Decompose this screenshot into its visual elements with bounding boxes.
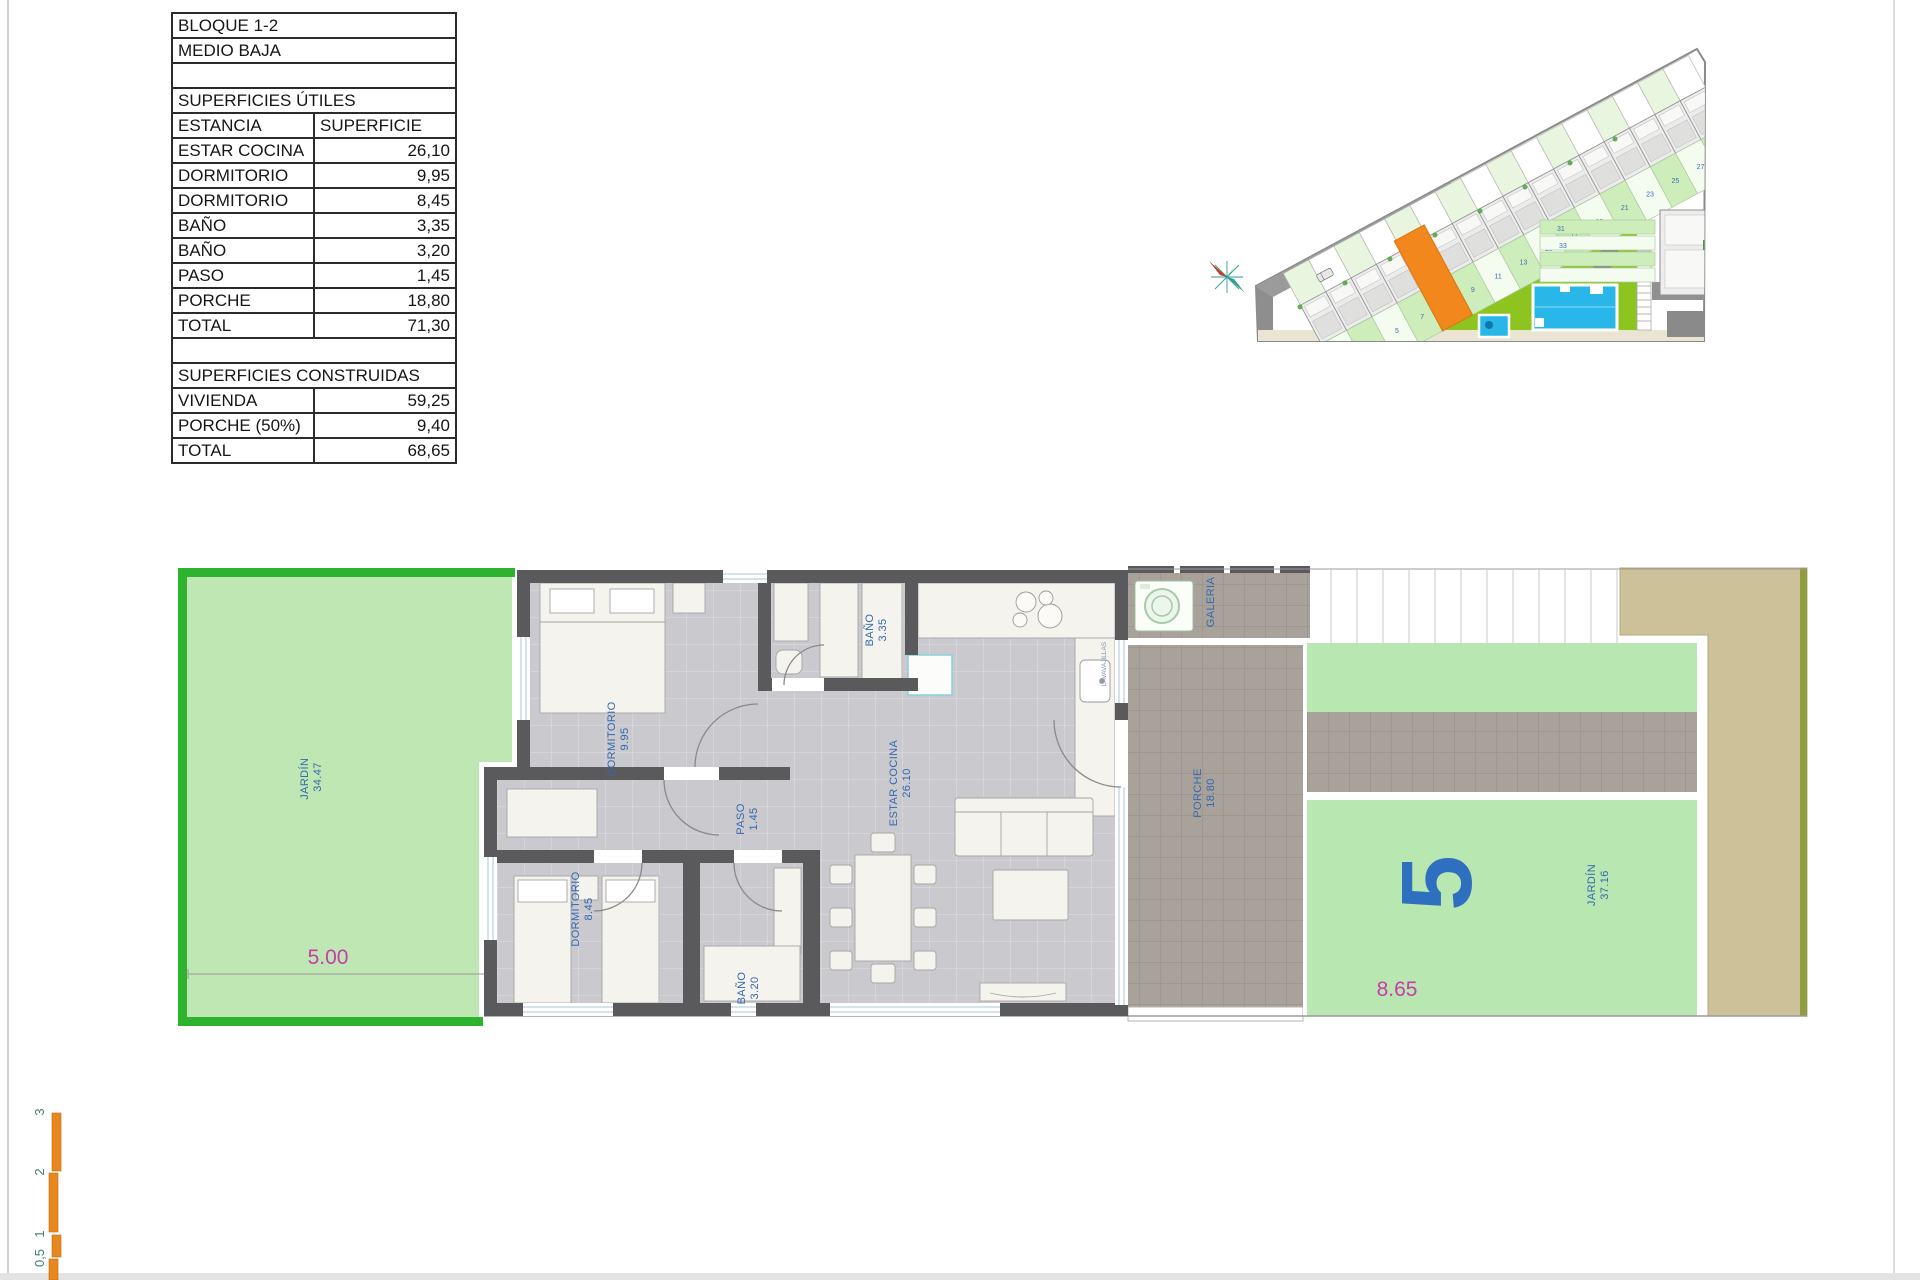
- table-row: TOTAL68,65: [172, 438, 456, 463]
- table-row: DORMITORIO9,95: [172, 163, 456, 188]
- porch-floor: [1128, 645, 1303, 1007]
- room-label-paso: PASO1.45: [735, 803, 760, 834]
- kids-pool: [1479, 315, 1509, 337]
- side-pool: [1732, 307, 1754, 339]
- page-bottom-edge: [0, 1273, 1920, 1280]
- page-left-edge: [7, 0, 9, 1280]
- table-row: BAÑO3,20: [172, 238, 456, 263]
- table-row: DORMITORIO8,45: [172, 188, 456, 213]
- pergola-hatch: [1310, 570, 1620, 643]
- plot-number: 5: [1395, 328, 1399, 335]
- col-header-estancia: ESTANCIA: [172, 113, 314, 138]
- plot-number: 33: [1559, 243, 1567, 250]
- table-section1-title: SUPERFICIES ÚTILES: [172, 88, 456, 113]
- table-row: PASO1,45: [172, 263, 456, 288]
- table-section2-title: SUPERFICIES CONSTRUIDAS: [172, 363, 456, 388]
- car-icon: [1705, 286, 1722, 295]
- scale-tick: 3: [32, 1108, 47, 1115]
- rear-walkway: [1307, 712, 1697, 792]
- appliance-label: LAVAVAJILLAS: [1101, 641, 1108, 686]
- garden-tan-gap: [1697, 637, 1708, 1016]
- table-empty-row: [172, 338, 456, 363]
- perimeter-hedge: [1800, 568, 1807, 1016]
- dimension-back: 8.65: [1377, 978, 1418, 1001]
- table-row: TOTAL71,30: [172, 313, 456, 338]
- rear-garden: [1307, 800, 1697, 1016]
- porch-right-gap: [1303, 643, 1307, 1016]
- rear-green-strip: [1307, 643, 1697, 712]
- plot-number: 9: [1471, 287, 1475, 294]
- table-row: PORCHE (50%)9,40: [172, 413, 456, 438]
- scale-tick: 0,5: [32, 1249, 47, 1267]
- plan-sheet: BLOQUE 1-2 MEDIO BAJA SUPERFICIES ÚTILES…: [0, 0, 1920, 1280]
- plot-number: 21: [1621, 205, 1629, 212]
- col-header-superficie: SUPERFICIE: [314, 113, 456, 138]
- plot-number: 3: [1370, 341, 1374, 348]
- main-pool: [1533, 285, 1617, 330]
- scale-tick: 2: [32, 1168, 47, 1175]
- table-row: ESTAR COCINA26,10: [172, 138, 456, 163]
- front-garden: [187, 577, 512, 1017]
- scale-bar: 3 2 1 0,5: [0, 1095, 80, 1280]
- page-right-edge: [1893, 0, 1895, 1280]
- surface-table: BLOQUE 1-2 MEDIO BAJA SUPERFICIES ÚTILES…: [171, 12, 457, 464]
- site-plaza: [1667, 311, 1709, 337]
- plot-number: 7: [1420, 314, 1424, 321]
- washing-machine-icon: [1135, 581, 1193, 631]
- compass-icon: [1209, 261, 1245, 293]
- table-block-title: BLOQUE 1-2: [172, 13, 456, 38]
- unit-number: 5: [1381, 855, 1493, 911]
- plot-number: 13: [1520, 260, 1528, 267]
- plot-number: 31: [1557, 226, 1565, 233]
- table-floor-title: MEDIO BAJA: [172, 38, 456, 63]
- table-empty-row: [172, 63, 456, 88]
- porch-step: [1128, 1007, 1303, 1021]
- table-row: PORCHE18,80: [172, 288, 456, 313]
- plot-number: 27: [1697, 164, 1705, 171]
- walkway-garden-gap: [1307, 792, 1697, 800]
- plot-number: 25: [1671, 178, 1679, 185]
- plot-number: 23: [1646, 191, 1654, 198]
- floor-plan: JARDÍN 34.47 5.00: [174, 564, 1810, 1034]
- dimension-front: 5.00: [308, 946, 349, 969]
- table-row: BAÑO3,35: [172, 213, 456, 238]
- room-label-galeria: GALERIA: [1205, 577, 1217, 628]
- site-right-block: 31 33: [1540, 210, 1760, 295]
- plot-number: 29: [1722, 151, 1730, 158]
- galeria-porch-divider: [1128, 638, 1310, 645]
- table-row: VIVIENDA59,25: [172, 388, 456, 413]
- site-plan: 357911131517192123252729: [1205, 35, 1770, 350]
- plot-number: 11: [1495, 273, 1502, 280]
- scale-tick: 1: [32, 1230, 47, 1237]
